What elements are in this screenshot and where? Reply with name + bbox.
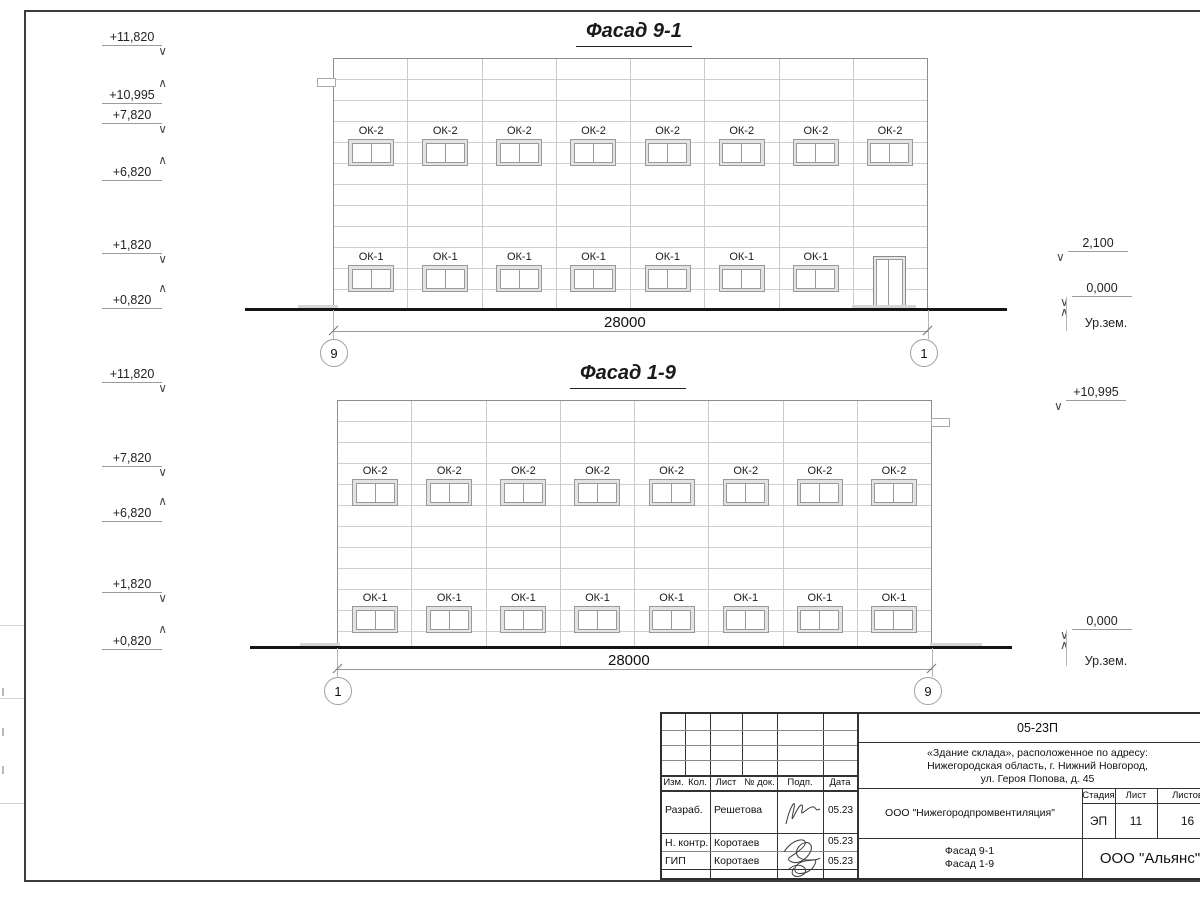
level-arrow-up-icon: ∧ [158,78,167,88]
window-label: ОК-2 [729,125,754,138]
tb-col-data: Дата [823,775,857,790]
tb-line [1082,803,1200,804]
window-pane [375,484,394,502]
extension-line [337,648,338,677]
window-label: ОК-2 [882,465,907,478]
window-label: ОК-1 [437,592,462,605]
window-bay: ОК-1 [482,251,556,307]
ground-level-label: Ур.зем. [1076,316,1136,331]
window-pane [723,144,741,162]
elevation-mark: +0,820 ∧ [102,293,162,309]
window-pane [371,144,390,162]
window [797,606,843,633]
window-pane [449,611,468,629]
window-pane [741,270,760,288]
window-pane [597,484,616,502]
window-bay: ОК-2 [635,465,709,506]
window [649,479,695,506]
window-pane [649,270,667,288]
facade-1-9-title: Фасад 1-9 [570,362,686,389]
window-label: ОК-1 [585,592,610,605]
tb-line [857,742,1200,743]
extension-line [928,310,929,339]
window-bay: ОК-1 [783,592,857,633]
window-pane [875,611,893,629]
facade-9-1-top-windows: ОК-2ОК-2ОК-2ОК-2ОК-2ОК-2ОК-2ОК-2 [334,125,927,166]
window [719,265,765,292]
window [574,479,620,506]
level-arrow-up-icon: ∧ [158,155,167,165]
frame-top [24,10,1200,12]
window-pane [649,144,667,162]
window-pane [445,144,464,162]
window-bay: ОК-2 [482,125,556,166]
project-description: «Здание склада», расположенное по адресу… [862,744,1200,788]
window-pane [593,144,612,162]
window-pane [819,611,838,629]
window-pane [431,611,449,629]
window [352,479,398,506]
window-pane [431,484,449,502]
tb-line [662,760,857,761]
window-pane [875,484,893,502]
margin-tick [2,728,4,736]
door-leaf [876,259,888,306]
company-name: ООО "Альянс" [1082,838,1200,878]
window [797,479,843,506]
window-bay: ОК-2 [556,125,630,166]
window-pane [523,611,542,629]
frame-left [24,10,26,882]
window [426,606,472,633]
level-arrow-down-icon: ∨ [158,593,167,603]
door-bay [853,251,927,307]
axis-bubble-9: 9 [320,339,348,367]
window-bay: ОК-1 [560,592,634,633]
window-bay: ОК-2 [408,125,482,166]
window-bay: ОК-2 [338,465,412,506]
facade-9-1-bottom-windows: ОК-1ОК-1ОК-1ОК-1ОК-1ОК-1ОК-1 [334,251,927,307]
frame-bottom [24,880,1200,882]
window-label: ОК-1 [655,251,680,264]
sheet-title: Фасад 9-1 Фасад 1-9 [857,840,1082,876]
window [426,479,472,506]
window-label: ОК-2 [511,465,536,478]
tb-col-kol: Кол. [685,775,710,790]
level-arrow-up-icon: ∧ [1060,640,1069,650]
window-pane [741,144,760,162]
level-arrow-up-icon: ∧ [158,624,167,634]
dimension-line [333,331,928,332]
window-bay: ОК-2 [709,465,783,506]
sheet-label: Лист [1115,788,1157,803]
tb-line [662,869,857,870]
window-pane [505,484,523,502]
elevation-mark: +1,820 ∨ [102,238,162,254]
window [348,139,394,166]
tb-col-podp: Подп. [777,775,823,790]
window-bay: ОК-1 [709,592,783,633]
level-arrow-down-icon: ∨ [1054,401,1063,411]
window-bay: ОК-1 [779,251,853,307]
window-pane [445,270,464,288]
window-bay: ОК-2 [560,465,634,506]
window [422,139,468,166]
window-pane [519,144,538,162]
elevation-mark: +6,820 ∧ [102,506,162,522]
window-bay: ОК-1 [631,251,705,307]
level-arrow-up-icon: ∧ [158,283,167,293]
design-org: ООО "Нижегородпромвентиляция" [860,790,1080,836]
window-pane [597,611,616,629]
title-block: Изм. Кол. Лист № док. Подп. Дата Разраб.… [660,712,1200,880]
window-bay: ОК-2 [631,125,705,166]
window-pane [357,611,375,629]
window-pane [801,484,819,502]
window-pane [893,611,912,629]
signature [776,832,826,878]
window-bay: ОК-1 [486,592,560,633]
axis-bubble-1: 1 [910,339,938,367]
tb-line [662,730,857,731]
window-pane [519,270,538,288]
facade-9-1: ОК-2ОК-2ОК-2ОК-2ОК-2ОК-2ОК-2ОК-2 ОК-1ОК-… [333,58,928,310]
elevation-mark: +7,820 ∨ [102,108,162,124]
window-pane [653,484,671,502]
door-leaf [889,259,904,306]
window [719,139,765,166]
window-pane [667,144,686,162]
sheet-value: 11 [1115,805,1157,836]
extension-line [932,648,933,677]
doc-number: 05-23П [857,714,1200,742]
tb-date: 05.23 [824,834,857,849]
window-pane [727,611,745,629]
dimension-label: 28000 [602,652,656,669]
tb-name: Коротаев [714,853,776,868]
elevation-mark: +0,820 ∧ [102,634,162,650]
level-arrow-up-icon: ∧ [158,496,167,506]
window [570,139,616,166]
elevation-mark: +11,820 ∨ [102,30,162,46]
window-label: ОК-2 [807,465,832,478]
tb-date: 05.23 [824,854,857,869]
elevation-mark: +7,820 ∨ [102,451,162,467]
signature [780,794,824,832]
tb-role: Разраб. [665,802,711,818]
elevation-mark: +11,820 ∨ [102,367,162,383]
window-label: ОК-2 [359,125,384,138]
margin-divider [0,698,24,699]
window-pane [501,144,519,162]
level-arrow-down-icon: ∨ [158,467,167,477]
window-pane [427,144,445,162]
window-bay: ОК-2 [779,125,853,166]
facade-1-9: ОК-2ОК-2ОК-2ОК-2ОК-2ОК-2ОК-2ОК-2 ОК-1ОК-… [337,400,932,648]
stage-value: ЭП [1082,805,1115,836]
dimension-label: 28000 [598,314,652,331]
window-label: ОК-2 [437,465,462,478]
tb-role: ГИП [665,853,715,868]
window-label: ОК-1 [733,592,758,605]
window-pane [575,144,593,162]
window-label: ОК-2 [803,125,828,138]
window-label: ОК-2 [878,125,903,138]
margin-divider [0,625,24,626]
window [645,265,691,292]
window-bay: ОК-2 [412,465,486,506]
tb-line [662,851,857,852]
window-pane [819,484,838,502]
window [793,265,839,292]
window-pane [427,270,445,288]
margin-tick [2,688,4,696]
elevation-mark: 2,100 ∨ [1068,236,1128,252]
level-arrow-down-icon: ∨ [158,254,167,264]
window-pane [449,484,468,502]
window-label: ОК-1 [803,251,828,264]
window-label: ОК-1 [581,251,606,264]
window-pane [523,484,542,502]
window-bay: ОК-2 [857,465,931,506]
window-label: ОК-1 [433,251,458,264]
downpipe-stub [931,418,950,427]
window-pane [671,484,690,502]
mark-leader [1066,630,1067,666]
window-label: ОК-1 [359,251,384,264]
axis-bubble-1: 1 [324,677,352,705]
window-label: ОК-1 [882,592,907,605]
drawing-sheet: Фасад 9-1 ОК-2ОК-2ОК-2ОК-2ОК-2ОК-2ОК-2ОК… [0,0,1200,900]
elevation-mark: +10,995 ∨ [1066,385,1126,401]
window-pane [357,484,375,502]
window-bay: ОК-2 [783,465,857,506]
window-pane [745,611,764,629]
window-bay: ОК-1 [338,592,412,633]
tb-role: Н. контр. [665,835,715,850]
axis-bubble-9: 9 [914,677,942,705]
window-pane [505,611,523,629]
tb-line [662,790,857,792]
window-pane [667,270,686,288]
ground-level-label: Ур.зем. [1076,654,1136,669]
margin-divider [0,803,24,804]
facade-1-9-top-windows: ОК-2ОК-2ОК-2ОК-2ОК-2ОК-2ОК-2ОК-2 [338,465,931,506]
window-bay: ОК-1 [412,592,486,633]
tb-date: 05.23 [824,802,857,818]
elevation-mark: +6,820 ∧ [102,165,162,181]
facade-1-9-bottom-windows: ОК-1ОК-1ОК-1ОК-1ОК-1ОК-1ОК-1ОК-1 [338,592,931,633]
tb-col-ndok: № док. [742,775,777,790]
window [723,479,769,506]
window-pane [815,144,834,162]
window-pane [797,144,815,162]
window-pane [801,611,819,629]
ground-line [250,646,1012,649]
window-label: ОК-1 [807,592,832,605]
elevation-mark: +1,820 ∨ [102,577,162,593]
window-bay: ОК-1 [334,251,408,307]
window-pane [815,270,834,288]
tb-name: Решетова [714,802,776,818]
window-bay: ОК-1 [857,592,931,633]
level-arrow-down-icon: ∨ [158,46,167,56]
entrance-door [873,256,906,307]
window-bay: ОК-1 [556,251,630,307]
window [649,606,695,633]
window-label: ОК-2 [585,465,610,478]
window-label: ОК-2 [363,465,388,478]
window-pane [375,611,394,629]
window-pane [745,484,764,502]
window-label: ОК-2 [655,125,680,138]
window-bay: ОК-2 [705,125,779,166]
window [793,139,839,166]
window-label: ОК-1 [659,592,684,605]
window-pane [579,611,597,629]
window-pane [797,270,815,288]
window-label: ОК-2 [507,125,532,138]
window-pane [575,270,593,288]
tb-name: Коротаев [714,835,776,850]
window-bay: ОК-1 [408,251,482,307]
ground-line [245,308,1007,311]
dimension-line [337,669,932,670]
window [570,265,616,292]
window [500,479,546,506]
window [500,606,546,633]
level-arrow-down-icon: ∨ [1056,252,1065,262]
elevation-mark: 0,000 ∨ ∧ [1072,281,1132,297]
tb-line [662,745,857,746]
extension-line [333,310,334,339]
window-pane [501,270,519,288]
window-pane [371,270,390,288]
facade-9-1-title: Фасад 9-1 [576,20,692,47]
window-pane [579,484,597,502]
window [723,606,769,633]
window-label: ОК-2 [433,125,458,138]
tb-col-list: Лист [710,775,742,790]
tb-col-izm: Изм. [662,775,685,790]
window [645,139,691,166]
window-label: ОК-1 [729,251,754,264]
level-arrow-down-icon: ∨ [158,383,167,393]
window-label: ОК-2 [733,465,758,478]
window-bay: ОК-1 [705,251,779,307]
elevation-mark: 0,000 ∨ ∧ [1072,614,1132,630]
window-bay: ОК-2 [853,125,927,166]
mark-leader [1066,297,1067,331]
window-bay: ОК-2 [486,465,560,506]
window-pane [723,270,741,288]
window [871,606,917,633]
window [352,606,398,633]
window-pane [871,144,889,162]
elevation-mark: +10,995 ∧ [102,88,162,104]
window-pane [593,270,612,288]
window [496,139,542,166]
window [496,265,542,292]
stage-label: Стадия [1082,788,1115,803]
window-label: ОК-1 [507,251,532,264]
window-label: ОК-1 [511,592,536,605]
window-pane [727,484,745,502]
window [422,265,468,292]
downpipe-stub [317,78,336,87]
sheets-label: Листов [1157,788,1200,803]
window-pane [893,484,912,502]
window [348,265,394,292]
window [867,139,913,166]
window-label: ОК-1 [363,592,388,605]
sheets-value: 16 [1157,805,1200,836]
level-arrow-up-icon: ∧ [1060,307,1069,317]
window-pane [671,611,690,629]
window-bay: ОК-1 [635,592,709,633]
window [574,606,620,633]
window-pane [353,270,371,288]
window-label: ОК-2 [581,125,606,138]
window [871,479,917,506]
window-pane [653,611,671,629]
window-pane [353,144,371,162]
margin-tick [2,766,4,774]
window-pane [889,144,908,162]
window-label: ОК-2 [659,465,684,478]
window-bay: ОК-2 [334,125,408,166]
level-arrow-down-icon: ∨ [158,124,167,134]
